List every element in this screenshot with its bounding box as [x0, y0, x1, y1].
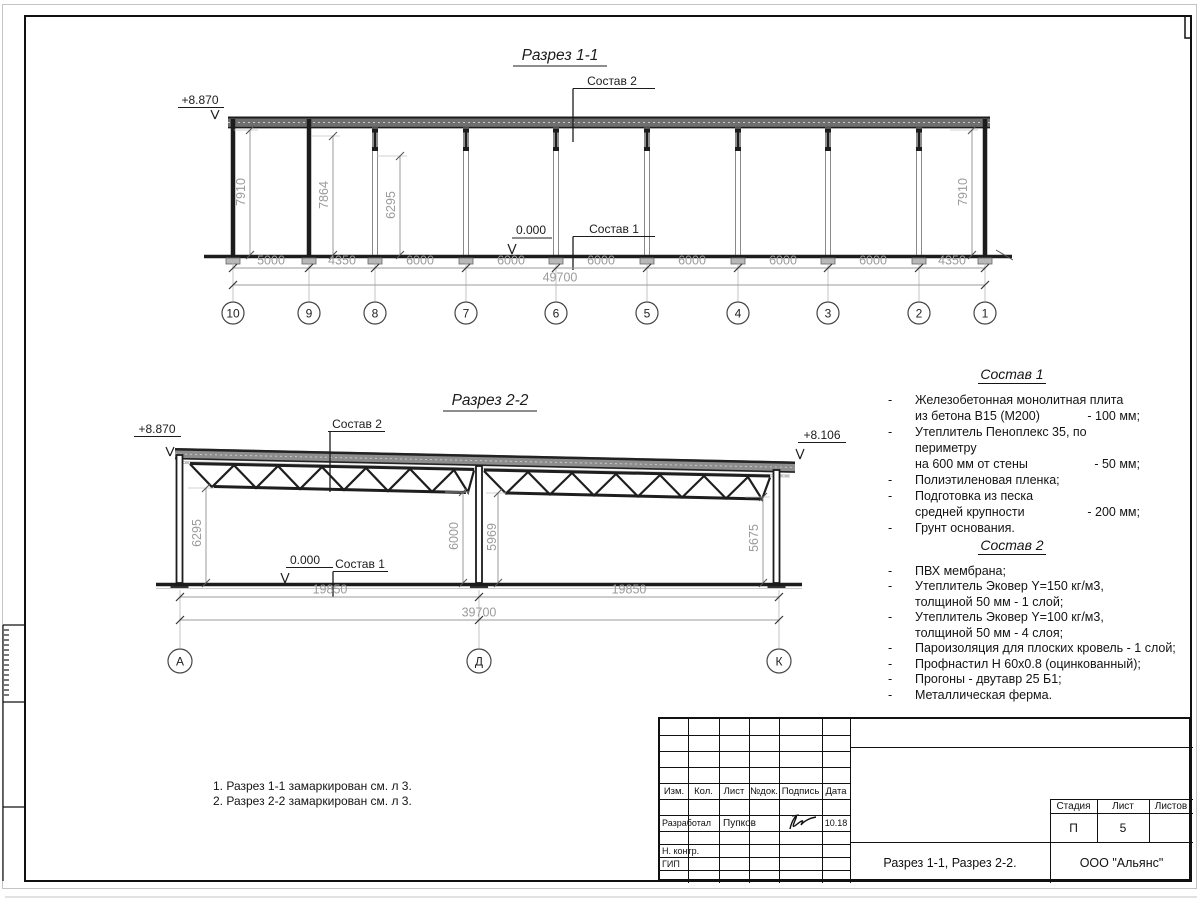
- dim-row-segments-1-1: 5000 4350 6000 6000 6000 6000 6000 6000 …: [229, 254, 989, 302]
- vertical-dims-1-1: 7910 7864 6295 7910: [234, 126, 978, 259]
- svg-text:Состав 2: Состав 2: [332, 417, 382, 431]
- svg-text:+8.106: +8.106: [803, 428, 840, 442]
- svg-text:9: 9: [306, 307, 313, 321]
- section-2-2: Разрез 2-2: [134, 392, 846, 673]
- svg-text:7910: 7910: [956, 178, 970, 206]
- svg-text:4350: 4350: [328, 254, 356, 268]
- list-item: средней крупности- 200 мм;: [884, 504, 1140, 520]
- list-item: -Утеплитель Эковер Y=150 кг/м3,: [884, 579, 1184, 595]
- list-item: -Профнастил Н 60х0.8 (оцинкованный);: [884, 657, 1184, 673]
- list-item: -Подготовка из песка: [884, 488, 1140, 504]
- list-item: толщиной 50 мм - 4 слоя;: [884, 626, 1184, 642]
- sostav1-block: Состав 1 -Железобетонная монолитная плит…: [884, 366, 1140, 536]
- list-item: -Металлическая ферма.: [884, 688, 1184, 704]
- list-item: толщиной 50 мм - 1 слой;: [884, 595, 1184, 611]
- section-1-1-title: Разрез 1-1: [522, 47, 599, 64]
- svg-text:49700: 49700: [543, 271, 578, 285]
- leader-sostav2-1-1: Состав 2: [573, 74, 655, 142]
- section-1-1: Разрез 1-1: [178, 47, 1013, 324]
- svg-text:7: 7: [463, 307, 470, 321]
- list-item: на 600 мм от стены- 50 мм;: [884, 456, 1140, 472]
- svg-text:6000: 6000: [406, 254, 434, 268]
- zero-level-mark-1-1: 0.000: [508, 223, 552, 254]
- list-item: -Полиэтиленовая пленка;: [884, 472, 1140, 488]
- svg-text:5: 5: [644, 307, 651, 321]
- svg-text:0.000: 0.000: [290, 553, 320, 567]
- svg-text:6295: 6295: [384, 191, 398, 219]
- note-line: 1. Разрез 1-1 замаркирован см. л 3.: [213, 779, 412, 794]
- dim-row-total-1-1: 49700: [229, 271, 989, 290]
- svg-text:4350: 4350: [938, 254, 966, 268]
- svg-text:6000: 6000: [678, 254, 706, 268]
- signature: [782, 807, 820, 837]
- elevation-mark-left-2-2: +8.870: [134, 422, 181, 456]
- svg-text:6000: 6000: [587, 254, 615, 268]
- stamp-company: ООО "Альянс": [1050, 842, 1193, 883]
- sostav2-block: Состав 2 -ПВХ мембрана; -Утеплитель Эков…: [884, 538, 1184, 703]
- stamp-stage-value: П: [1050, 813, 1097, 842]
- stamp-developer-name: Пупков: [721, 815, 781, 831]
- stamp-sheet-label: Лист: [1097, 799, 1149, 813]
- truss-left-2-2: [190, 464, 474, 493]
- svg-text:10: 10: [226, 307, 240, 321]
- elevation-mark-left-1-1: +8.870: [178, 93, 224, 119]
- stamp-stage-label: Стадия: [1050, 799, 1097, 813]
- stamp-col-kol: Кол.: [688, 783, 719, 799]
- svg-text:19850: 19850: [612, 583, 647, 597]
- stamp-sheet-value: 5: [1097, 813, 1149, 842]
- svg-text:3: 3: [825, 307, 832, 321]
- section-2-2-title: Разрез 2-2: [452, 392, 529, 409]
- svg-text:8: 8: [372, 307, 379, 321]
- list-item: -Прогоны - двутавр 25 Б1;: [884, 672, 1184, 688]
- svg-text:19850: 19850: [313, 583, 348, 597]
- svg-text:6000: 6000: [447, 522, 461, 550]
- title-block: Изм. Кол. Лист №док. Подпись Дата Разраб…: [658, 717, 1191, 881]
- axis-circles-1-1: [222, 302, 996, 324]
- stamp-gip-label: ГИП: [660, 857, 721, 870]
- svg-text:К: К: [776, 655, 783, 669]
- axis-labels-1-1: 10 9 8 7 6 5 4 3 2 1: [226, 307, 988, 321]
- svg-text:0.000: 0.000: [516, 223, 546, 237]
- svg-text:5675: 5675: [747, 524, 761, 552]
- svg-text:5969: 5969: [485, 523, 499, 551]
- svg-text:1: 1: [982, 307, 989, 321]
- axis-labels-2-2: А Д К: [176, 655, 783, 669]
- stamp-date: 10.18: [822, 815, 850, 831]
- left-margin-text-strip: [4, 629, 9, 697]
- list-item: из бетона В15 (М200)- 100 мм;: [884, 408, 1140, 424]
- stamp-col-data: Дата: [822, 783, 850, 799]
- list-item: -Утеплитель Эковер Y=100 кг/м3,: [884, 610, 1184, 626]
- svg-text:6295: 6295: [190, 519, 204, 547]
- list-item: -Пароизоляция для плоских кровель - 1 сл…: [884, 641, 1184, 657]
- svg-text:39700: 39700: [462, 606, 497, 620]
- stamp-sheets-label: Листов: [1149, 799, 1193, 813]
- zero-level-mark-2-2: 0.000: [281, 553, 333, 583]
- drawing-sheet: Разрез 1-1: [0, 0, 1200, 900]
- svg-text:4: 4: [735, 307, 742, 321]
- notes-block: 1. Разрез 1-1 замаркирован см. л 3. 2. Р…: [213, 779, 412, 809]
- svg-text:6000: 6000: [859, 254, 887, 268]
- dim-rows-2-2: 19850 19850 39700: [176, 583, 783, 649]
- svg-text:А: А: [176, 655, 184, 669]
- svg-text:Состав 1: Состав 1: [589, 222, 639, 236]
- roof-slab-1-1: [228, 118, 990, 128]
- sostav1-title: Состав 1: [884, 366, 1140, 382]
- svg-text:2: 2: [916, 307, 923, 321]
- truss-right-2-2: [484, 470, 770, 499]
- svg-text:6000: 6000: [497, 254, 525, 268]
- svg-text:Состав 1: Состав 1: [335, 557, 385, 571]
- stamp-col-izm: Изм.: [660, 783, 688, 799]
- svg-text:+8.870: +8.870: [138, 422, 175, 436]
- svg-text:5000: 5000: [257, 254, 285, 268]
- svg-text:7910: 7910: [234, 178, 248, 206]
- elevation-mark-right-2-2: +8.106: [796, 428, 846, 459]
- svg-text:Состав 2: Состав 2: [587, 74, 637, 88]
- svg-text:6000: 6000: [769, 254, 797, 268]
- stamp-doc-title: Разрез 1-1, Разрез 2-2.: [850, 842, 1050, 883]
- stamp-col-list: Лист: [719, 783, 749, 799]
- stamp-developer-label: Разработал: [660, 815, 721, 831]
- svg-text:7864: 7864: [317, 181, 331, 209]
- sostav2-title: Состав 2: [884, 538, 1140, 554]
- stamp-ncontrol-label: Н. контр.: [660, 844, 721, 857]
- stamp-col-ndok: №док.: [749, 783, 779, 799]
- note-line: 2. Разрез 2-2 замаркирован см. л 3.: [213, 794, 412, 809]
- list-item: -ПВХ мембрана;: [884, 564, 1184, 580]
- svg-text:+8.870: +8.870: [181, 93, 218, 107]
- list-item: -Железобетонная монолитная плита: [884, 392, 1140, 408]
- list-item: -Грунт основания.: [884, 520, 1140, 536]
- stamp-col-podpis: Подпись: [779, 783, 822, 799]
- svg-text:Д: Д: [475, 655, 483, 669]
- svg-text:6: 6: [553, 307, 560, 321]
- list-item: -Утеплитель Пеноплекс 35, по периметру: [884, 424, 1140, 456]
